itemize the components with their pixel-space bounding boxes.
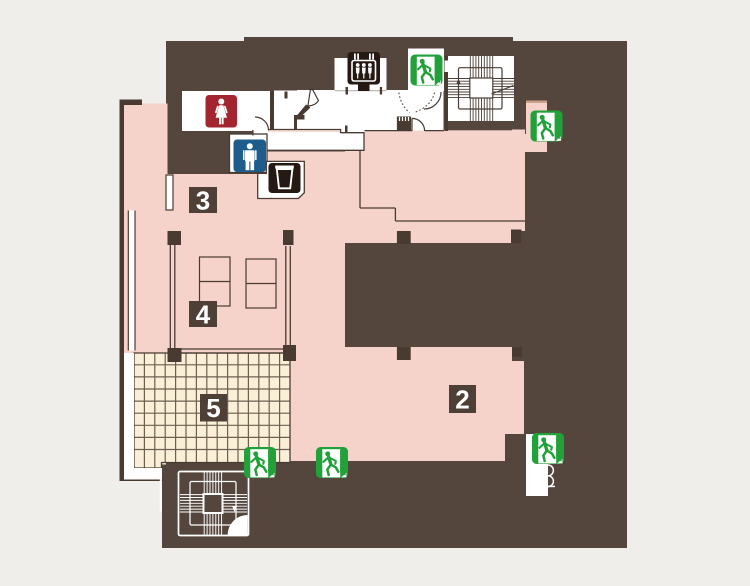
svg-text:5: 5 bbox=[206, 393, 220, 423]
svg-text:2: 2 bbox=[455, 384, 469, 414]
svg-text:4: 4 bbox=[196, 299, 211, 329]
svg-text:3: 3 bbox=[196, 185, 210, 215]
